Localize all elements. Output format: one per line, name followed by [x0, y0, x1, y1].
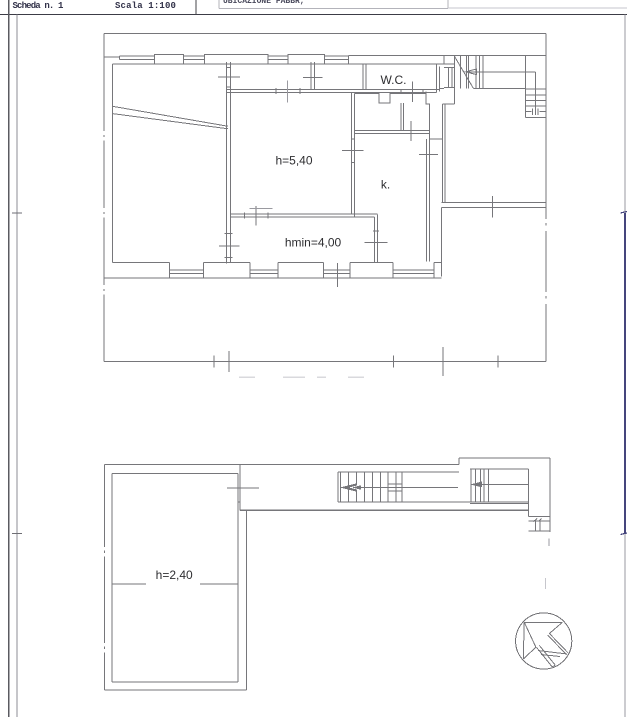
svg-text:hmin=4,00: hmin=4,00 [285, 236, 342, 250]
svg-text:Scala 1:100: Scala 1:100 [115, 1, 176, 11]
svg-text:h=5,40: h=5,40 [275, 154, 312, 168]
svg-text:h=2,40: h=2,40 [156, 568, 193, 582]
svg-text:W.C.: W.C. [381, 73, 407, 87]
svg-text:UBICAZIONE FABBR,: UBICAZIONE FABBR, [223, 0, 305, 6]
svg-text:k.: k. [381, 178, 390, 192]
svg-text:Scheda n. 1: Scheda n. 1 [13, 1, 65, 11]
